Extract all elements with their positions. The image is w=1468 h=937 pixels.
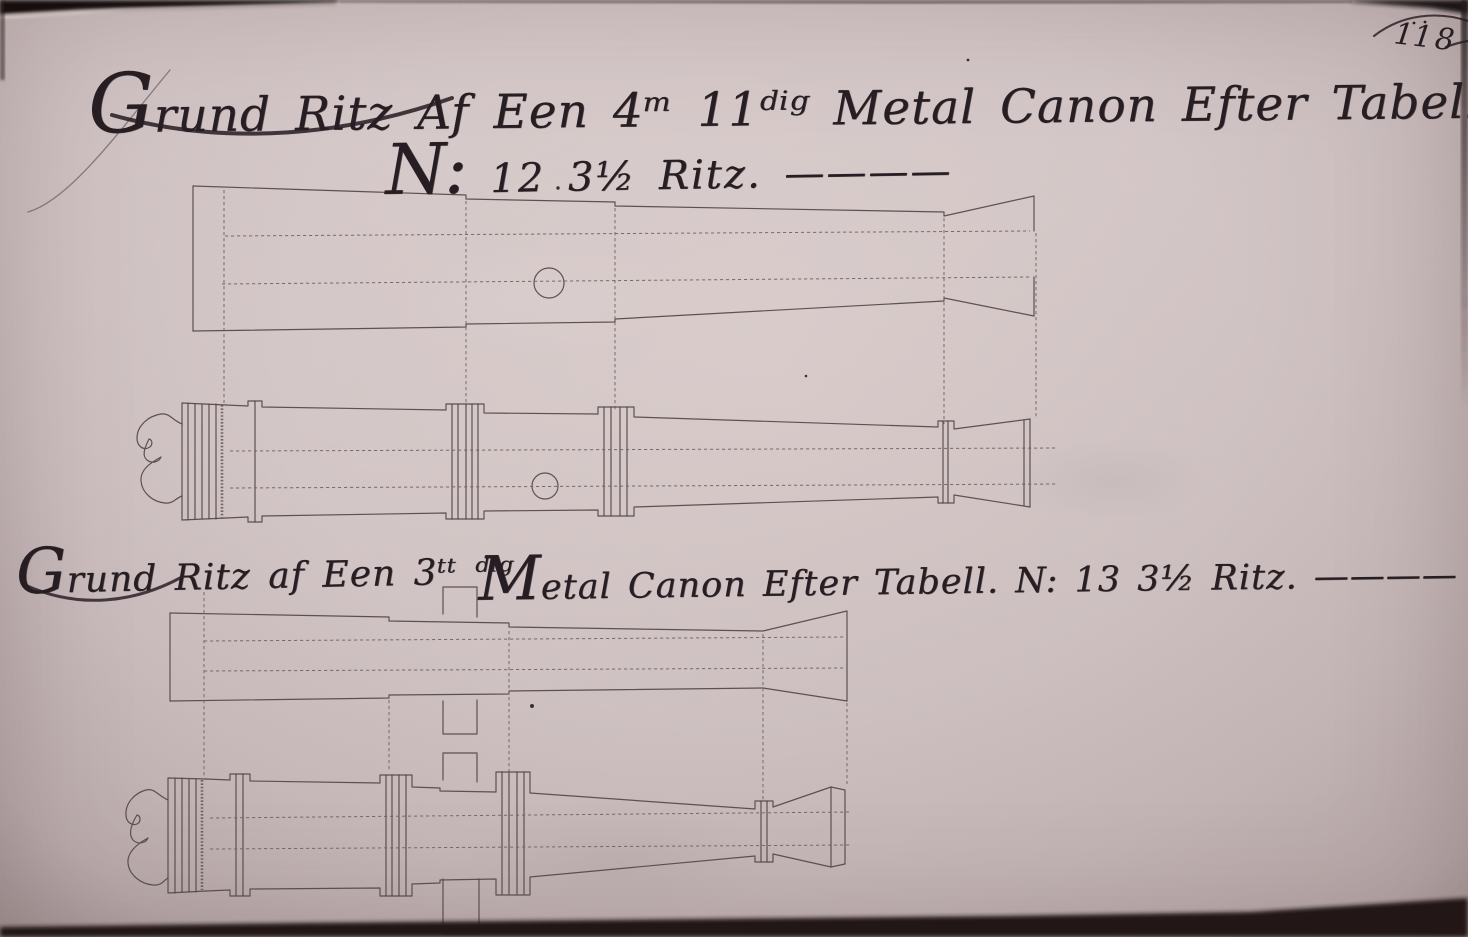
figure-plan-view-canon-2	[170, 587, 847, 800]
title-line-2: N: 12 3½ Ritz. ————	[384, 119, 952, 211]
figure-profile-view-canon-1	[137, 401, 1058, 522]
cascabel	[126, 790, 168, 885]
manuscript-page: Grund Ritz Af Een 4ᵐ 11ᵈⁱᵍ Metal Canon E…	[0, 0, 1468, 937]
caption2-right: Metal Canon Efter Tabell. N: 13 3½ Ritz.…	[478, 530, 1458, 615]
figure-profile-view-canon-2	[126, 772, 852, 934]
vent-circle	[534, 268, 564, 298]
figure-plan-view-canon-1	[193, 186, 1036, 424]
page-number: 118	[1392, 16, 1459, 58]
caption2-left: Grund Ritz af Een 3ᵗᵗ ᵈⁱᵍ	[15, 525, 514, 608]
trunnion-stub-bottom	[443, 700, 477, 782]
cascabel	[137, 414, 182, 503]
